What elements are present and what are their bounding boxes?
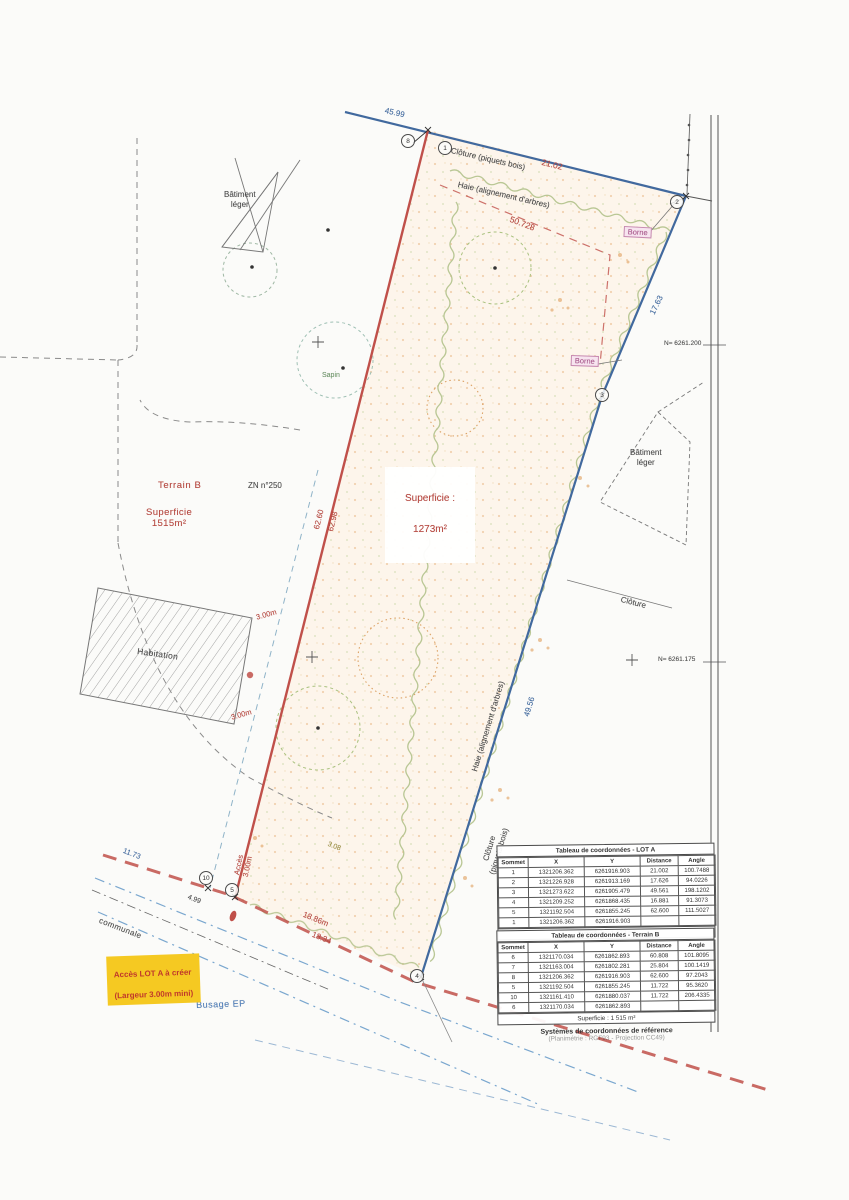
vertex-4: 4 bbox=[410, 969, 424, 983]
lot-a-area-box: Superficie : 1273m² bbox=[385, 467, 475, 563]
vertex-10: 10 bbox=[199, 871, 213, 885]
plan-drawing bbox=[0, 0, 849, 1200]
table-lot-a: Tableau de coordonnées - LOT A SommetX Y… bbox=[496, 843, 715, 941]
vertex-5: 5 bbox=[225, 883, 239, 897]
red-marker-dot bbox=[247, 672, 253, 678]
parcel-zn-number: ZN n°250 bbox=[248, 481, 282, 491]
culvert-mark bbox=[228, 910, 237, 922]
grid-north-6261-175: N= 6261.175 bbox=[658, 656, 695, 664]
label-busage-ep: Busage EP bbox=[196, 998, 246, 1011]
scanned-survey-plan: Clôture (piquets bois) Haie (alignement … bbox=[0, 0, 849, 1200]
vertex-8: 8 bbox=[401, 134, 415, 148]
label-batiment-leger-2: Bâtiment léger bbox=[630, 448, 662, 467]
vertex-3: 3 bbox=[595, 388, 609, 402]
terrain-b-area: Superficie 1515m² bbox=[146, 507, 192, 530]
label-batiment-leger-1: Bâtiment léger bbox=[224, 190, 256, 209]
lot-a-area-label: Superficie : bbox=[395, 493, 465, 505]
table-terrain-b-footer: Superficie : 1 515 m² bbox=[498, 1011, 714, 1025]
label-sapin: Sapin bbox=[322, 372, 340, 380]
vertex-2: 2 bbox=[670, 195, 684, 209]
terrain-b-name: Terrain B bbox=[158, 480, 201, 491]
lot-a-area-value: 1273m² bbox=[395, 524, 465, 536]
vertex-1: 1 bbox=[438, 141, 452, 155]
table-terrain-b: Tableau de coordonnées - Terrain B Somme… bbox=[496, 928, 715, 1044]
access-note-line1: Accès LOT A à créer bbox=[114, 967, 192, 979]
borne-label-2: Borne bbox=[571, 355, 599, 367]
grid-north-6261-200: N= 6261.200 bbox=[664, 340, 701, 348]
access-note-line2: (Largeur 3.00m mini) bbox=[114, 989, 193, 1001]
access-note-highlight: Accès LOT A à créer (Largeur 3.00m mini) bbox=[106, 953, 200, 1005]
borne-label-1: Borne bbox=[623, 226, 652, 238]
fence-post-line bbox=[686, 114, 691, 194]
